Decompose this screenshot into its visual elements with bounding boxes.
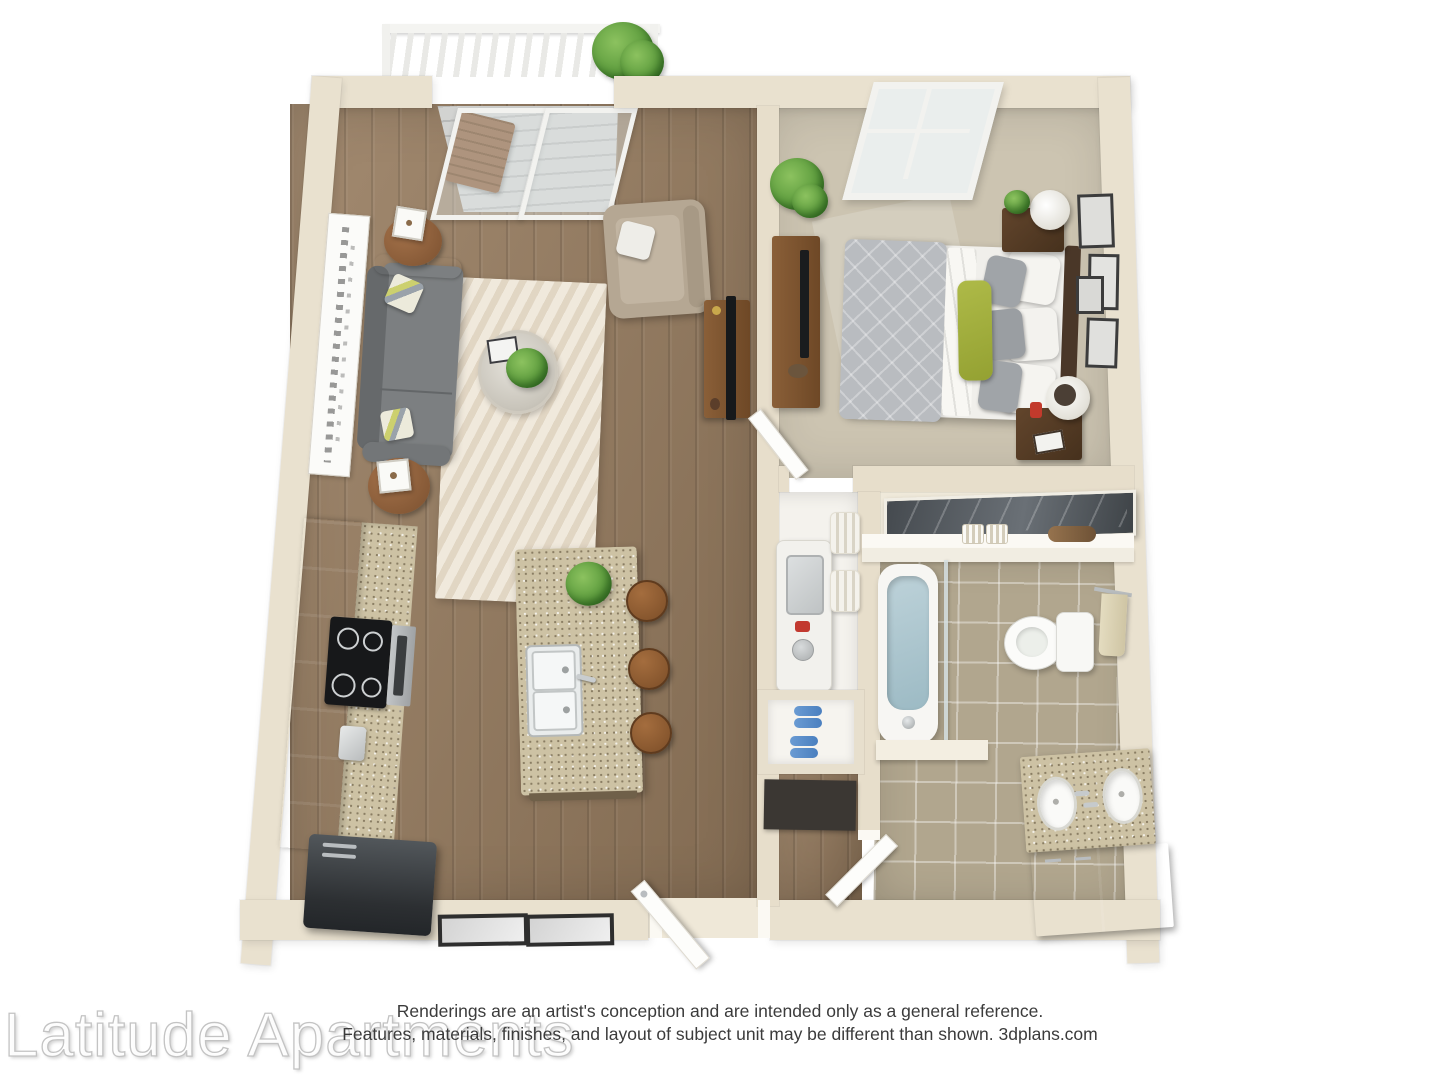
toilet-bowl bbox=[1004, 616, 1064, 670]
wall-frame-3 bbox=[1076, 276, 1104, 314]
vanity-handle-2 bbox=[1075, 856, 1091, 860]
disclaimer-line-2: Features, materials, finishes, and layou… bbox=[0, 1024, 1440, 1045]
island-double-sink bbox=[525, 644, 583, 737]
drain-1 bbox=[562, 666, 569, 673]
refrigerator bbox=[303, 834, 437, 937]
bathtub-faucet bbox=[902, 716, 915, 729]
fridge-handles bbox=[323, 843, 357, 849]
lamp-south bbox=[1046, 376, 1090, 420]
pillow-green bbox=[957, 280, 993, 381]
shoe-blue-2b bbox=[790, 748, 818, 758]
floor-plan-rendering: Latitude Apartments Renderings are an ar… bbox=[0, 0, 1440, 1080]
bar-stool-3 bbox=[630, 712, 672, 754]
lamp-north bbox=[1030, 190, 1070, 230]
nightstand-red-decor bbox=[1030, 402, 1042, 418]
console-decor-dark bbox=[710, 398, 720, 410]
shoe-blue-1a bbox=[794, 706, 822, 716]
bathroom-door-jamb bbox=[858, 830, 880, 840]
double-vanity bbox=[1020, 747, 1175, 942]
bedroom-corner-plant-2 bbox=[792, 184, 828, 218]
wall-oven bbox=[386, 625, 416, 707]
armchair bbox=[602, 199, 712, 320]
shower-glass-panel bbox=[944, 560, 948, 744]
door-jamb-entry-right bbox=[758, 900, 770, 938]
closet-shelf-front bbox=[862, 548, 1134, 562]
bedroom-tv bbox=[800, 250, 809, 358]
sink-drain-2 bbox=[1118, 791, 1124, 797]
console-decor-gold bbox=[712, 306, 721, 315]
washer-detergent-red bbox=[795, 621, 810, 632]
window-mullion-h bbox=[867, 129, 970, 133]
towel-roll-shelf-south bbox=[830, 570, 860, 612]
lamp-south-interior bbox=[1054, 384, 1076, 406]
closet-knit-bin-1 bbox=[962, 524, 984, 544]
cube-lamp-north bbox=[392, 206, 427, 241]
washer bbox=[776, 540, 832, 692]
shoe-blue-2a bbox=[790, 736, 818, 746]
kitchen-cabinet-run bbox=[279, 518, 427, 856]
coffee-maker bbox=[338, 725, 366, 761]
floor-frame-1 bbox=[438, 913, 529, 947]
balcony-rail-post-left bbox=[382, 24, 390, 78]
bathtub-water bbox=[887, 576, 929, 710]
nightstand-plant bbox=[1004, 190, 1030, 214]
lamp-finial bbox=[406, 219, 413, 226]
drain-2 bbox=[563, 706, 570, 713]
sink-basin-1 bbox=[531, 650, 576, 691]
floor-frame-2 bbox=[526, 913, 615, 947]
entry-floor-mat bbox=[764, 779, 857, 831]
cooktop bbox=[324, 616, 392, 708]
kitchen-island bbox=[515, 546, 644, 801]
sofa bbox=[356, 261, 464, 459]
wall-frame-1 bbox=[1077, 193, 1115, 248]
bathroom-half-wall bbox=[876, 740, 988, 760]
washer-knob bbox=[792, 639, 814, 661]
bar-stool-1 bbox=[626, 580, 668, 622]
tv-living bbox=[726, 296, 736, 420]
shoe-cubby bbox=[758, 690, 864, 774]
burner-2 bbox=[362, 631, 383, 652]
burner-4 bbox=[361, 677, 382, 698]
vanity-faucet-2 bbox=[1083, 802, 1098, 808]
closet-knit-bin-2 bbox=[986, 524, 1008, 544]
burner-1 bbox=[336, 627, 360, 651]
sofa-pillow-south bbox=[380, 407, 415, 442]
lamp-finial-2 bbox=[390, 472, 398, 480]
oven-window bbox=[393, 635, 407, 696]
sink-basin-2 bbox=[532, 690, 577, 731]
disclaimer-line-1: Renderings are an artist's conception an… bbox=[0, 1001, 1440, 1022]
washer-door bbox=[786, 555, 824, 615]
hanging-towel bbox=[1098, 593, 1127, 656]
closet-clutch-bag bbox=[1048, 526, 1096, 542]
shoe-blue-1b bbox=[794, 718, 822, 728]
cube-lamp-south bbox=[376, 458, 411, 493]
dresser-decor-rock bbox=[788, 364, 808, 378]
vanity-cabinet bbox=[1030, 843, 1174, 936]
front-door-knob bbox=[639, 889, 649, 899]
sink-drain-1 bbox=[1053, 799, 1059, 805]
coffee-table-plant bbox=[506, 348, 548, 388]
bedroom-dresser bbox=[772, 236, 820, 408]
vanity-faucet-1 bbox=[1074, 790, 1089, 796]
wall-frame-4 bbox=[1085, 317, 1119, 368]
bedroom-south-wall bbox=[853, 466, 1134, 492]
burner-3 bbox=[331, 673, 357, 699]
toilet-tank bbox=[1056, 612, 1094, 672]
bar-stool-2 bbox=[628, 648, 670, 690]
bed-duvet-gray bbox=[839, 239, 947, 422]
window-mullion-v bbox=[903, 89, 932, 179]
fridge-handle-2 bbox=[322, 853, 356, 859]
vanity-handle-1 bbox=[1045, 859, 1061, 863]
toilet-seat-inner bbox=[1016, 627, 1048, 657]
towel-roll-shelf-north bbox=[830, 512, 860, 554]
armchair-back bbox=[682, 205, 705, 308]
bathtub bbox=[878, 564, 938, 744]
